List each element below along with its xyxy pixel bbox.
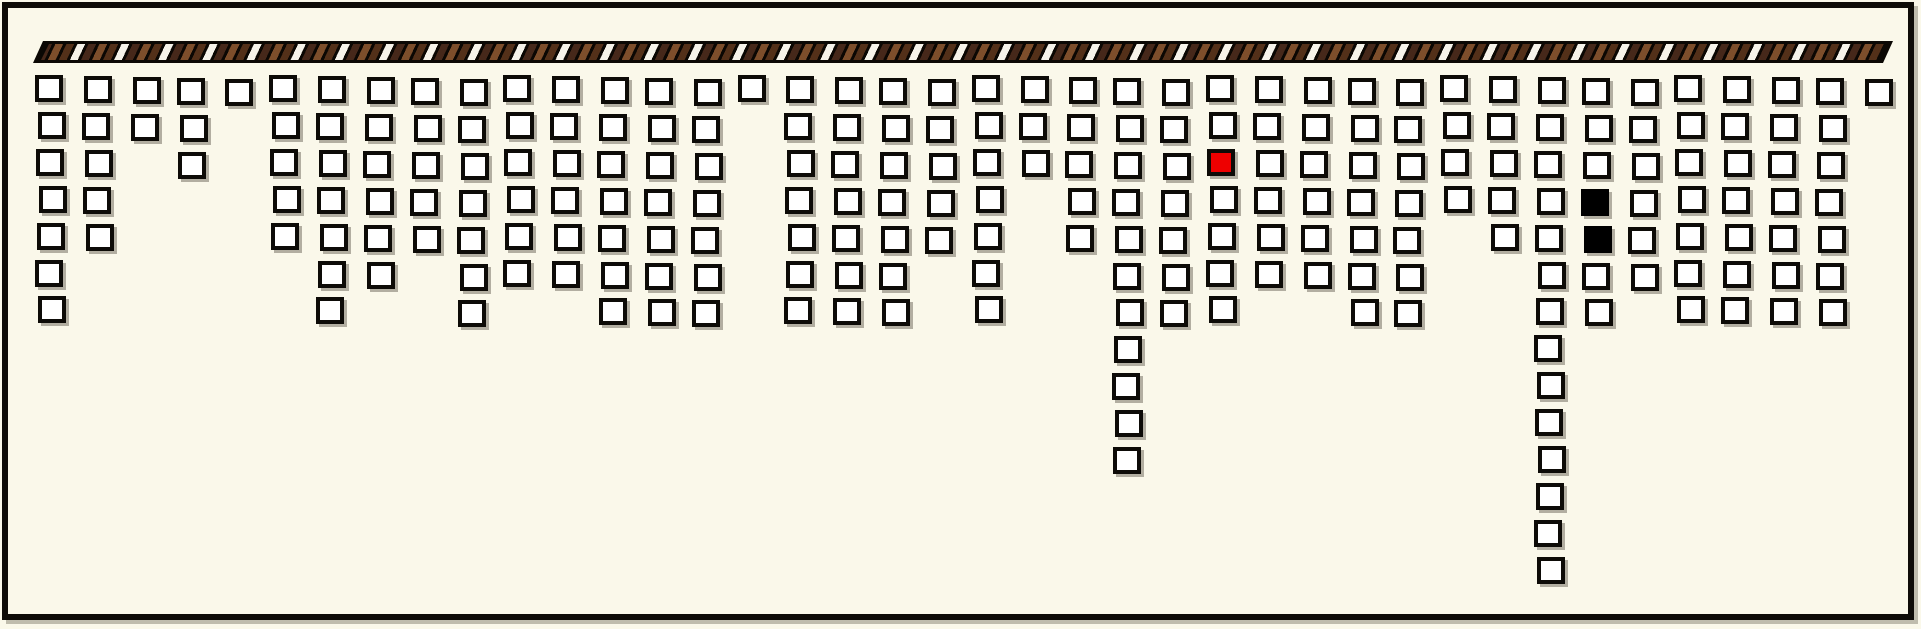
board-cell[interactable]: [1115, 226, 1143, 253]
board-cell[interactable]: [1112, 189, 1140, 216]
board-cell[interactable]: [833, 114, 861, 141]
board-cell[interactable]: [1303, 188, 1331, 215]
board-cell[interactable]: [973, 149, 1001, 176]
board-cell[interactable]: [1206, 75, 1234, 102]
board-cell[interactable]: [1585, 299, 1613, 326]
board-cell[interactable]: [926, 116, 954, 143]
board-cell[interactable]: [785, 187, 813, 214]
board-cell[interactable]: [1255, 76, 1283, 103]
board-cell[interactable]: [1629, 116, 1657, 143]
board-cell[interactable]: [1113, 263, 1141, 290]
board-cell[interactable]: [1116, 299, 1144, 326]
board-cell[interactable]: [318, 76, 346, 103]
board-cell[interactable]: [784, 113, 812, 140]
board-cell[interactable]: [647, 226, 675, 253]
board-cell[interactable]: [177, 78, 205, 105]
board-cell[interactable]: [834, 188, 862, 215]
board-cell[interactable]: [927, 190, 955, 217]
board-cell[interactable]: [1721, 297, 1749, 324]
board-cell[interactable]: [786, 261, 814, 288]
board-cell[interactable]: [1161, 190, 1189, 217]
board-cell[interactable]: [82, 113, 110, 140]
board-cell[interactable]: [1490, 150, 1518, 177]
board-cell[interactable]: [366, 188, 394, 215]
board-cell[interactable]: [316, 297, 344, 324]
board-cell[interactable]: [457, 227, 485, 254]
board-cell[interactable]: [38, 296, 66, 323]
board-cell[interactable]: [1114, 336, 1142, 363]
board-cell[interactable]: [180, 115, 208, 142]
board-cell[interactable]: [1721, 113, 1749, 140]
board-cell[interactable]: [86, 224, 114, 251]
board-cell[interactable]: [972, 260, 1000, 287]
board-cell[interactable]: [787, 150, 815, 177]
board-cell[interactable]: [1771, 188, 1799, 215]
board-cell[interactable]: [318, 261, 346, 288]
board-cell[interactable]: [552, 261, 580, 288]
board-cell[interactable]: [1630, 190, 1658, 217]
board-cell[interactable]: [975, 296, 1003, 323]
board-cell[interactable]: [692, 116, 720, 143]
board-cell[interactable]: [1301, 225, 1329, 252]
board-cell[interactable]: [461, 153, 489, 180]
board-cell[interactable]: [1068, 188, 1096, 215]
board-cell[interactable]: [1723, 261, 1751, 288]
board-cell[interactable]: [1537, 372, 1565, 399]
board-cell[interactable]: [85, 150, 113, 177]
board-cell[interactable]: [363, 151, 391, 178]
board-cell[interactable]: [1443, 112, 1471, 139]
board-cell-black[interactable]: [1581, 189, 1609, 216]
board-cell[interactable]: [1019, 113, 1047, 140]
board-cell[interactable]: [835, 77, 863, 104]
board-cell[interactable]: [553, 150, 581, 177]
board-cell[interactable]: [1113, 447, 1141, 474]
board-cell[interactable]: [1534, 520, 1562, 547]
board-cell[interactable]: [1114, 152, 1142, 179]
board-cell[interactable]: [1395, 190, 1423, 217]
board-cell[interactable]: [929, 153, 957, 180]
board-cell[interactable]: [1768, 151, 1796, 178]
board-cell[interactable]: [320, 224, 348, 251]
board-cell[interactable]: [1772, 262, 1800, 289]
board-cell[interactable]: [1069, 77, 1097, 104]
board-cell[interactable]: [1865, 79, 1893, 106]
board-cell[interactable]: [1488, 187, 1516, 214]
board-cell[interactable]: [39, 186, 67, 213]
board-cell[interactable]: [1441, 149, 1469, 176]
board-cell[interactable]: [1535, 225, 1563, 252]
board-cell[interactable]: [648, 115, 676, 142]
board-cell[interactable]: [644, 189, 672, 216]
board-cell[interactable]: [1021, 76, 1049, 103]
board-cell[interactable]: [1396, 79, 1424, 106]
board-cell[interactable]: [1770, 114, 1798, 141]
board-cell[interactable]: [410, 189, 438, 216]
board-cell[interactable]: [1440, 75, 1468, 102]
board-cell[interactable]: [694, 79, 722, 106]
board-cell[interactable]: [1350, 226, 1378, 253]
board-cell[interactable]: [459, 190, 487, 217]
board-cell[interactable]: [1723, 76, 1751, 103]
board-cell[interactable]: [552, 76, 580, 103]
board-cell[interactable]: [1254, 187, 1282, 214]
board-cell[interactable]: [1160, 116, 1188, 143]
board-cell[interactable]: [507, 186, 535, 213]
board-cell[interactable]: [1351, 299, 1379, 326]
board-cell[interactable]: [414, 115, 442, 142]
board-cell[interactable]: [178, 152, 206, 179]
board-cell[interactable]: [1348, 78, 1376, 105]
board-cell[interactable]: [1304, 77, 1332, 104]
board-cell[interactable]: [35, 75, 63, 102]
board-cell[interactable]: [1489, 76, 1517, 103]
board-cell[interactable]: [880, 152, 908, 179]
board-cell[interactable]: [1394, 116, 1422, 143]
board-cell[interactable]: [269, 75, 297, 102]
board-cell[interactable]: [1162, 264, 1190, 291]
board-cell[interactable]: [601, 77, 629, 104]
board-cell[interactable]: [597, 151, 625, 178]
board-cell[interactable]: [599, 298, 627, 325]
board-cell[interactable]: [1257, 224, 1285, 251]
board-cell[interactable]: [36, 149, 64, 176]
board-cell-red[interactable]: [1207, 149, 1235, 176]
board-cell[interactable]: [1112, 373, 1140, 400]
board-cell[interactable]: [35, 260, 63, 287]
board-cell[interactable]: [1255, 261, 1283, 288]
board-cell[interactable]: [879, 263, 907, 290]
board-cell[interactable]: [976, 186, 1004, 213]
board-cell[interactable]: [1535, 409, 1563, 436]
board-cell[interactable]: [1022, 150, 1050, 177]
board-cell[interactable]: [1585, 115, 1613, 142]
board-cell[interactable]: [1722, 187, 1750, 214]
board-cell[interactable]: [1163, 153, 1191, 180]
board-cell[interactable]: [1818, 226, 1846, 253]
board-cell[interactable]: [1770, 298, 1798, 325]
board-cell[interactable]: [458, 116, 486, 143]
tile-board: [0, 0, 1921, 629]
board-cell[interactable]: [270, 149, 298, 176]
board-cell[interactable]: [1394, 300, 1422, 327]
board-cell[interactable]: [1065, 151, 1093, 178]
board-cell[interactable]: [882, 299, 910, 326]
board-cell[interactable]: [460, 264, 488, 291]
board-cell[interactable]: [271, 223, 299, 250]
board-cell[interactable]: [1534, 335, 1562, 362]
board-cell[interactable]: [1537, 557, 1565, 584]
board-cell[interactable]: [1815, 189, 1843, 216]
board-cell[interactable]: [695, 153, 723, 180]
board-cell[interactable]: [1160, 300, 1188, 327]
board-cell[interactable]: [319, 150, 347, 177]
board-cell[interactable]: [273, 186, 301, 213]
board-cell[interactable]: [1210, 186, 1238, 213]
board-cell[interactable]: [458, 300, 486, 327]
board-cell[interactable]: [833, 298, 861, 325]
board-cell[interactable]: [878, 189, 906, 216]
board-cell[interactable]: [1256, 150, 1284, 177]
board-cell[interactable]: [37, 223, 65, 250]
board-cell[interactable]: [316, 113, 344, 140]
board-cell[interactable]: [691, 227, 719, 254]
board-cell[interactable]: [131, 114, 159, 141]
board-cell[interactable]: [554, 224, 582, 251]
board-cell[interactable]: [1066, 225, 1094, 252]
board-cell[interactable]: [882, 115, 910, 142]
board-cell[interactable]: [1725, 224, 1753, 251]
board-cell[interactable]: [598, 225, 626, 252]
board-cell[interactable]: [1162, 79, 1190, 106]
board-cell[interactable]: [38, 112, 66, 139]
board-cell[interactable]: [1677, 296, 1705, 323]
board-cell[interactable]: [832, 225, 860, 252]
board-cell[interactable]: [692, 300, 720, 327]
board-cell[interactable]: [646, 152, 674, 179]
board-cell[interactable]: [411, 78, 439, 105]
board-cell[interactable]: [1159, 227, 1187, 254]
board-cell[interactable]: [133, 77, 161, 104]
board-cell[interactable]: [1208, 223, 1236, 250]
board-cell[interactable]: [600, 188, 628, 215]
board-cell[interactable]: [506, 112, 534, 139]
board-cell[interactable]: [1537, 188, 1565, 215]
board-cell[interactable]: [1628, 227, 1656, 254]
board-cell[interactable]: [1304, 262, 1332, 289]
board-cell[interactable]: [645, 78, 673, 105]
board-cell[interactable]: [1116, 115, 1144, 142]
board-cell[interactable]: [1582, 263, 1610, 290]
board-cell[interactable]: [1536, 114, 1564, 141]
board-cell[interactable]: [1583, 152, 1611, 179]
board-cell[interactable]: [505, 223, 533, 250]
board-cell-black[interactable]: [1584, 226, 1612, 253]
board-cell[interactable]: [1113, 78, 1141, 105]
board-cell[interactable]: [272, 112, 300, 139]
board-cell[interactable]: [1772, 77, 1800, 104]
board-cell[interactable]: [694, 264, 722, 291]
board-cell[interactable]: [975, 112, 1003, 139]
board-cell[interactable]: [460, 79, 488, 106]
board-cell[interactable]: [1396, 264, 1424, 291]
board-cell[interactable]: [503, 260, 531, 287]
board-cell[interactable]: [1816, 263, 1844, 290]
board-cell[interactable]: [1538, 446, 1566, 473]
board-cell[interactable]: [1819, 299, 1847, 326]
board-cell[interactable]: [1209, 296, 1237, 323]
board-cell[interactable]: [1538, 77, 1566, 104]
board-cell[interactable]: [1444, 186, 1472, 213]
board-cell[interactable]: [1206, 260, 1234, 287]
board-cell[interactable]: [1300, 151, 1328, 178]
board-cell[interactable]: [645, 263, 673, 290]
board-cell[interactable]: [1536, 298, 1564, 325]
board-cell[interactable]: [317, 187, 345, 214]
board-cell[interactable]: [550, 113, 578, 140]
board-cell[interactable]: [928, 79, 956, 106]
board-cell[interactable]: [1397, 153, 1425, 180]
board-cell[interactable]: [1632, 153, 1660, 180]
board-cell[interactable]: [1067, 114, 1095, 141]
board-cell[interactable]: [1536, 483, 1564, 510]
board-cell[interactable]: [1816, 78, 1844, 105]
board-cell[interactable]: [1351, 115, 1379, 142]
board-cell[interactable]: [1677, 112, 1705, 139]
board-cell[interactable]: [1393, 227, 1421, 254]
board-cell[interactable]: [1817, 152, 1845, 179]
board-cell[interactable]: [881, 226, 909, 253]
board-cell[interactable]: [1534, 151, 1562, 178]
board-cell[interactable]: [225, 79, 253, 106]
board-cell[interactable]: [693, 190, 721, 217]
board-cell[interactable]: [1487, 113, 1515, 140]
board-cell[interactable]: [974, 223, 1002, 250]
board-cell[interactable]: [1769, 225, 1797, 252]
board-cell[interactable]: [1631, 264, 1659, 291]
board-cell[interactable]: [601, 262, 629, 289]
board-cell[interactable]: [599, 114, 627, 141]
board-cell[interactable]: [1348, 263, 1376, 290]
board-cell[interactable]: [1538, 262, 1566, 289]
board-cell[interactable]: [503, 75, 531, 102]
board-cell[interactable]: [831, 151, 859, 178]
board-cell[interactable]: [925, 227, 953, 254]
board-cell[interactable]: [1582, 78, 1610, 105]
board-cell[interactable]: [84, 76, 112, 103]
board-cell[interactable]: [1302, 114, 1330, 141]
board-cell[interactable]: [364, 225, 392, 252]
board-cell[interactable]: [1209, 112, 1237, 139]
board-cell[interactable]: [1674, 260, 1702, 287]
board-cell[interactable]: [972, 75, 1000, 102]
board-cell[interactable]: [412, 152, 440, 179]
board-cell[interactable]: [1115, 410, 1143, 437]
board-cell[interactable]: [504, 149, 532, 176]
board-cell[interactable]: [788, 224, 816, 251]
board-cell[interactable]: [413, 226, 441, 253]
board-cell[interactable]: [1491, 224, 1519, 251]
board-cell[interactable]: [1349, 152, 1377, 179]
board-cell[interactable]: [551, 187, 579, 214]
board-cell[interactable]: [784, 297, 812, 324]
board-stage: [0, 0, 1921, 629]
board-cell[interactable]: [1676, 223, 1704, 250]
board-cell[interactable]: [1253, 113, 1281, 140]
board-cell[interactable]: [738, 75, 766, 102]
board-cell[interactable]: [1819, 115, 1847, 142]
board-cell[interactable]: [1675, 149, 1703, 176]
board-cell[interactable]: [1631, 79, 1659, 106]
board-cell[interactable]: [367, 262, 395, 289]
board-cell[interactable]: [786, 76, 814, 103]
board-cell[interactable]: [83, 187, 111, 214]
board-cell[interactable]: [648, 299, 676, 326]
board-cell[interactable]: [367, 77, 395, 104]
board-cell[interactable]: [1724, 150, 1752, 177]
board-cell[interactable]: [1347, 189, 1375, 216]
board-cell[interactable]: [835, 262, 863, 289]
board-cell[interactable]: [365, 114, 393, 141]
board-cell[interactable]: [879, 78, 907, 105]
board-cell[interactable]: [1674, 75, 1702, 102]
board-cell[interactable]: [1678, 186, 1706, 213]
